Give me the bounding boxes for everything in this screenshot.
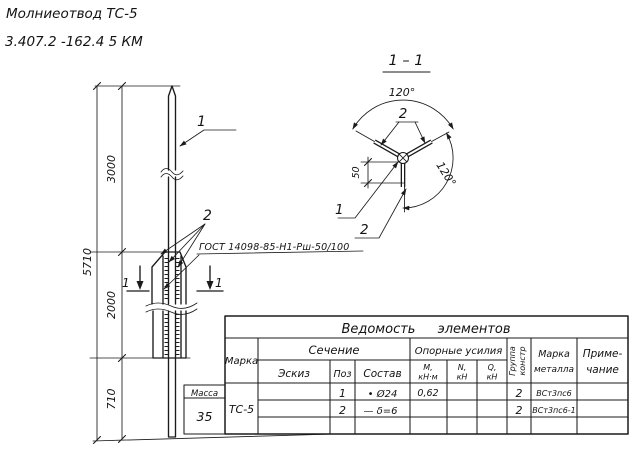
- section-mark-left-label: 1: [122, 276, 130, 290]
- section-leader-top-left: [381, 122, 399, 145]
- section-leader-top-right: [415, 122, 425, 143]
- angle-top-label: 120°: [389, 86, 416, 99]
- col-n-1: N,: [458, 363, 467, 372]
- row1-sostav: • Ø24: [368, 388, 398, 400]
- dim-bottom: 710: [105, 389, 118, 410]
- col-group-2: констр: [518, 346, 527, 375]
- massa-header: Масса: [191, 389, 218, 399]
- leader-line-rod: [180, 130, 236, 146]
- section-mark-right-label: 1: [215, 276, 223, 290]
- row1-metal: ВСт3пс6: [536, 389, 572, 398]
- col-sostav: Состав: [363, 368, 401, 380]
- col-q-1: Q,: [488, 363, 497, 372]
- row1-group: 2: [516, 387, 523, 400]
- row2-group: 2: [516, 404, 523, 417]
- col-n-2: кН: [457, 373, 468, 382]
- main-view: 5710 3000 2000 710 1 2 ГОСТ 14098-85-Н1-…: [81, 83, 363, 444]
- section-arrow-left-icon: [137, 281, 144, 290]
- section-leader-plates-top: 2: [381, 106, 425, 145]
- gost-note: ГОСТ 14098-85-Н1-Рш-50/100: [164, 242, 363, 289]
- drawing-sheet: Молниеотвод ТС-5 3.407.2 -162.4 5 КМ 571…: [0, 0, 631, 459]
- dim-overall: 5710: [81, 248, 94, 276]
- table-row: 1 • Ø24 0,62 2 ВСт3пс6: [339, 387, 572, 400]
- drawing-title: Молниеотвод ТС-5: [6, 6, 138, 22]
- section-pos-rod: 1: [335, 202, 344, 218]
- col-m-2: кН·м: [418, 373, 437, 382]
- dim-mid: 2000: [105, 291, 118, 319]
- table-row: 2 — δ=6 2 ВСт3пс6-1: [339, 404, 576, 417]
- angle-side-label: 120°: [433, 159, 458, 188]
- section-mark-right: 1: [197, 266, 223, 291]
- table-title: Ведомость элементов: [341, 322, 510, 337]
- leader-pos-rod: 1: [180, 114, 236, 146]
- section-mark-left: 1: [122, 266, 149, 291]
- offset-dimension: 50: [351, 157, 404, 188]
- col-group-1: Группа: [508, 346, 517, 376]
- section-view: 1 – 1 120° 120° 50 1 2: [335, 53, 459, 238]
- section-pos-plate-bottom: 2: [360, 222, 369, 238]
- col-forces: Опорные усилия: [415, 346, 502, 357]
- section-mark-left-lines: [127, 266, 149, 291]
- col-metal-2: металла: [534, 365, 574, 375]
- col-poz: Поз: [333, 369, 351, 380]
- col-note-2: чание: [586, 364, 619, 376]
- col-eskiz: Эскиз: [277, 368, 310, 380]
- col-metal-1: Марка: [538, 349, 570, 360]
- section-pos-plates-top: 2: [399, 106, 408, 122]
- offset-dim-label: 50: [351, 166, 362, 178]
- extension-lines: [90, 86, 335, 441]
- rod-cross-hatch: [399, 154, 407, 162]
- row2-metal: ВСт3пс6-1: [532, 406, 576, 415]
- section-arrow-right-icon: [207, 281, 214, 290]
- row2-poz: 2: [339, 404, 346, 417]
- drawing-series-code: 3.407.2 -162.4 5 КМ: [5, 34, 143, 50]
- col-note-1: Приме-: [583, 348, 623, 360]
- break-symbols: [146, 169, 197, 315]
- row2-sostav: — δ=6: [363, 406, 397, 417]
- drawing-canvas: Молниеотвод ТС-5 3.407.2 -162.4 5 КМ 571…: [0, 0, 631, 459]
- section-leader-rod: 1: [335, 162, 398, 218]
- dim-top: 3000: [105, 155, 118, 183]
- title-block: Молниеотвод ТС-5 3.407.2 -162.4 5 КМ: [5, 6, 143, 50]
- row1-m: 0,62: [417, 388, 438, 399]
- massa-value: 35: [197, 409, 213, 424]
- col-m-1: М,: [423, 363, 432, 372]
- col-sechenie: Сечение: [308, 343, 359, 357]
- col-marka: Марка: [225, 356, 258, 367]
- col-q-2: кН: [487, 373, 498, 382]
- pos-label-rod: 1: [197, 114, 206, 130]
- pos-label-plates: 2: [203, 208, 212, 224]
- elements-table: Ведомость элементов Марка Сечение Эскиз …: [184, 316, 628, 434]
- row1-poz: 1: [339, 387, 346, 400]
- section-view-title: 1 – 1: [389, 53, 424, 69]
- section-leader-plate-bottom: 2: [355, 189, 406, 238]
- marka-value: ТС-5: [229, 403, 254, 416]
